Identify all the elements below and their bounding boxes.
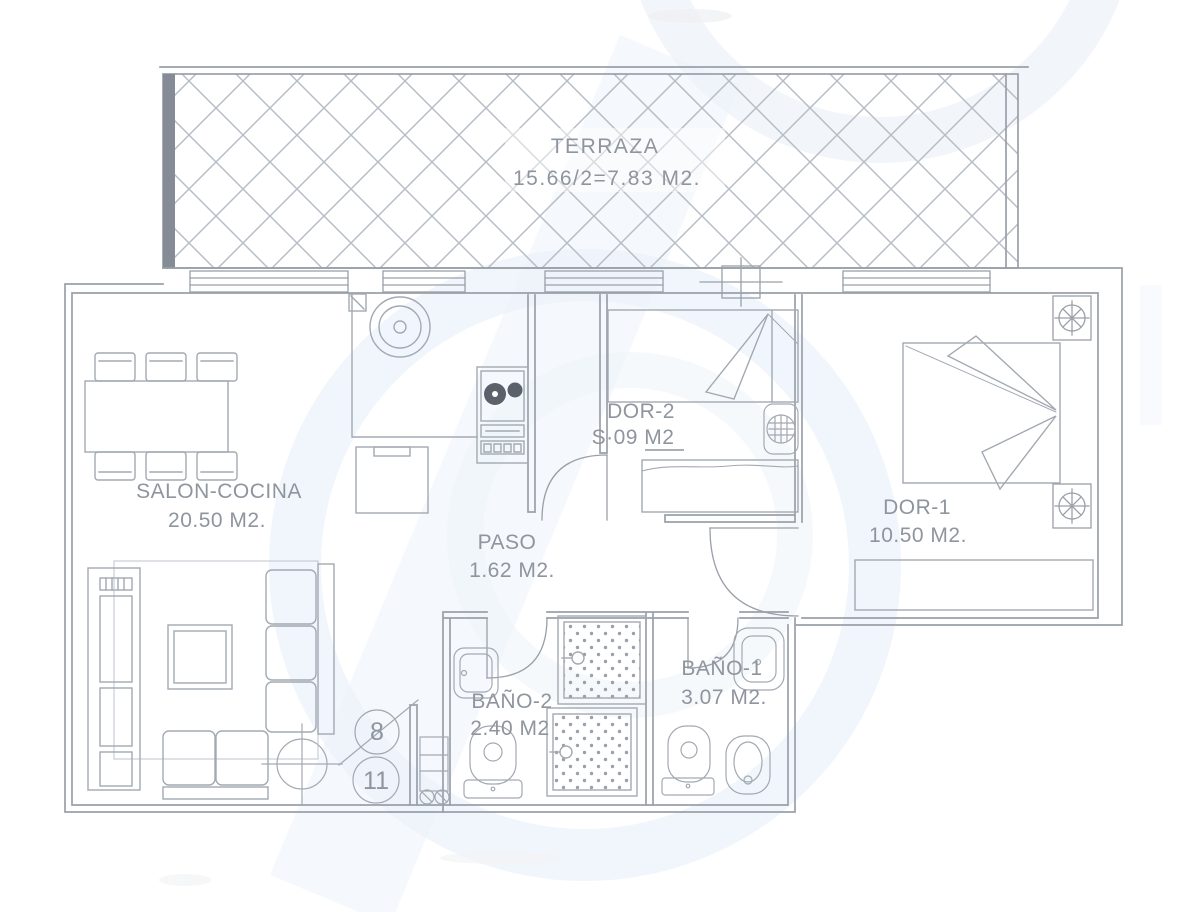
- shower-bottom: [547, 708, 637, 796]
- column-marker-right-top: [1053, 296, 1091, 340]
- label-bano2-area: 2.40 M2: [470, 717, 549, 740]
- double-bed-dor1: [903, 336, 1060, 489]
- label-salon-area: 20.50 M2.: [168, 509, 266, 532]
- window-salon: [190, 271, 348, 292]
- label-marker-11: 11: [363, 767, 389, 795]
- toilet-bano1: [662, 726, 714, 795]
- label-bano1-area: 3.07 M2.: [681, 686, 767, 709]
- coffee-table: [168, 625, 232, 689]
- label-salon-name: SALON-COCINA: [136, 480, 302, 503]
- label-dor2-area: S·09 M2: [592, 426, 675, 449]
- dining-table-set: [85, 353, 237, 480]
- sofa-two-seat: [163, 731, 268, 799]
- label-dor1-area: 10.50 M2.: [869, 524, 967, 547]
- window-dor1: [843, 271, 990, 292]
- label-bano2-name: BAÑO-2: [471, 689, 552, 713]
- label-terraza-area: 15.66/2=7.83 M2.: [513, 167, 701, 190]
- terrace-wall-dark: [163, 74, 175, 268]
- column-marker-right-bottom: [1053, 484, 1091, 528]
- floor-plan-page: TERRAZA 15.66/2=7.83 M2. SALON-COCINA 20…: [0, 0, 1200, 912]
- label-paso-area: 1.62 M2.: [469, 559, 555, 582]
- label-paso-name: PASO: [478, 531, 537, 554]
- shower-top: [558, 616, 646, 704]
- label-marker-8: 8: [370, 718, 384, 746]
- label-dor2-name: DOR-2: [607, 400, 675, 423]
- label-dor1-name: DOR-1: [883, 496, 951, 519]
- label-terraza-name: TERRAZA: [551, 135, 660, 158]
- label-bano1-name: BAÑO-1: [681, 656, 762, 680]
- floor-plan-drawing: TERRAZA 15.66/2=7.83 M2. SALON-COCINA 20…: [0, 0, 1200, 912]
